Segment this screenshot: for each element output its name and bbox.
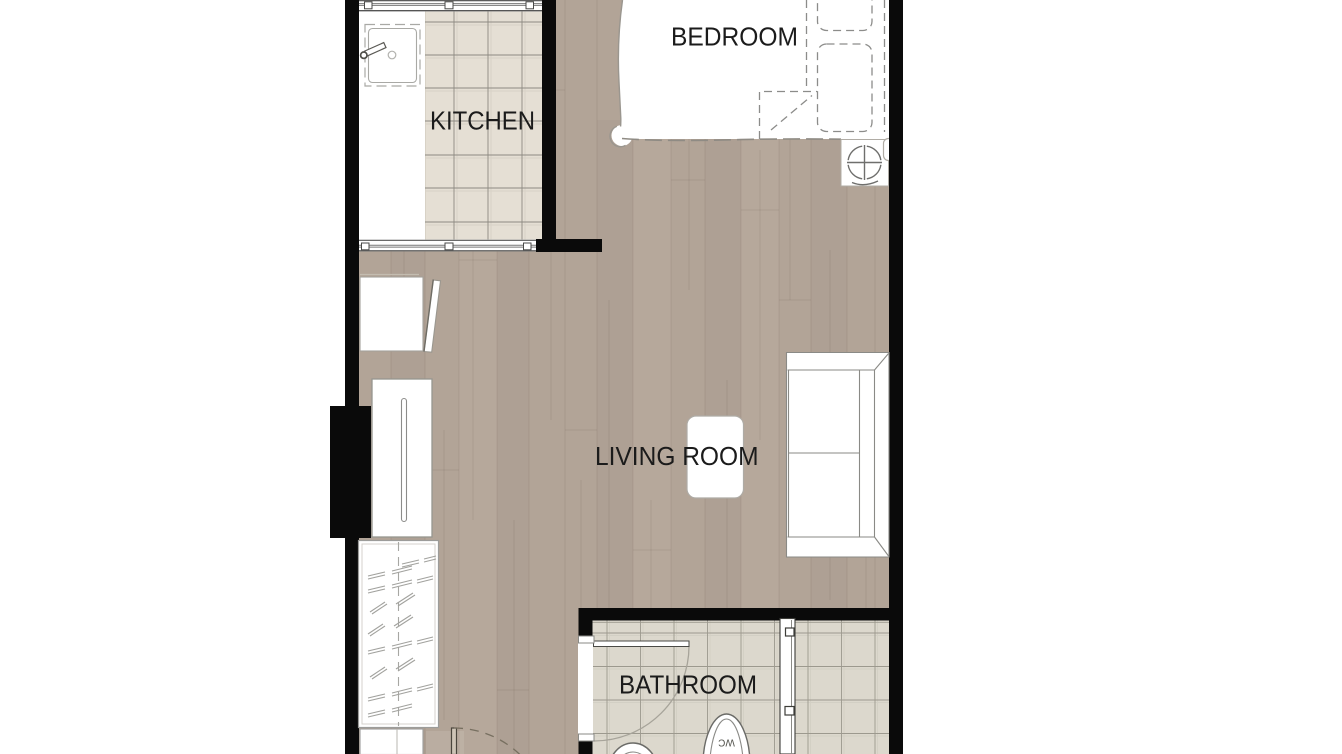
svg-text:LIVING ROOM: LIVING ROOM <box>595 441 759 471</box>
svg-text:WC: WC <box>718 737 735 748</box>
svg-text:BATHROOM: BATHROOM <box>619 670 757 700</box>
svg-text:BEDROOM: BEDROOM <box>671 22 798 52</box>
svg-text:KITCHEN: KITCHEN <box>430 106 535 136</box>
